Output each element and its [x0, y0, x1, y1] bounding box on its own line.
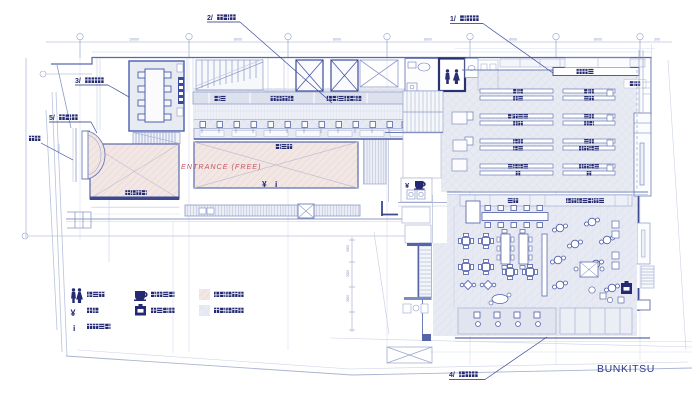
- svg-text:¥: ¥: [71, 308, 76, 318]
- svg-text:8000: 8000: [594, 38, 602, 42]
- svg-text:8000: 8000: [57, 144, 61, 152]
- svg-text:8000: 8000: [234, 38, 242, 42]
- svg-text:i: i: [73, 323, 75, 333]
- svg-text:1/: 1/: [450, 16, 456, 23]
- svg-text:300: 300: [654, 38, 660, 42]
- svg-text:5/: 5/: [49, 115, 55, 122]
- svg-text:¥: ¥: [262, 179, 267, 189]
- svg-text:8000: 8000: [509, 38, 517, 42]
- svg-text:3000: 3000: [346, 270, 350, 277]
- svg-text:2/: 2/: [207, 15, 213, 22]
- svg-text:BUNKITSU: BUNKITSU: [597, 363, 655, 375]
- svg-text:3000: 3000: [346, 295, 350, 302]
- svg-text:3/: 3/: [75, 78, 81, 85]
- svg-text:3000: 3000: [346, 245, 350, 252]
- svg-text:10000: 10000: [129, 38, 139, 42]
- svg-text:8000: 8000: [333, 38, 341, 42]
- svg-text:4/: 4/: [449, 372, 455, 379]
- svg-text:8000: 8000: [424, 38, 432, 42]
- svg-text:i: i: [275, 179, 277, 189]
- svg-text:ENTRANCE (FREE): ENTRANCE (FREE): [181, 162, 262, 171]
